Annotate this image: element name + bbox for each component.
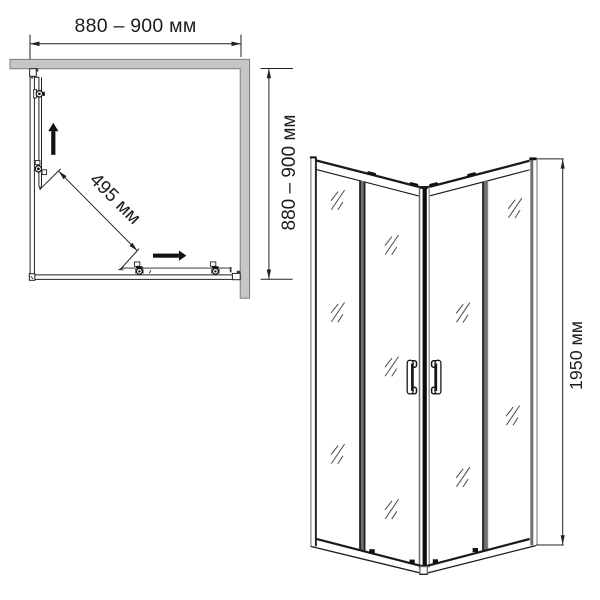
svg-text:880 – 900 мм: 880 – 900 мм: [279, 115, 300, 231]
svg-text:495 мм: 495 мм: [85, 169, 144, 228]
svg-text:1950 мм: 1950 мм: [566, 321, 586, 390]
svg-text:880 – 900 мм: 880 – 900 мм: [75, 15, 197, 37]
